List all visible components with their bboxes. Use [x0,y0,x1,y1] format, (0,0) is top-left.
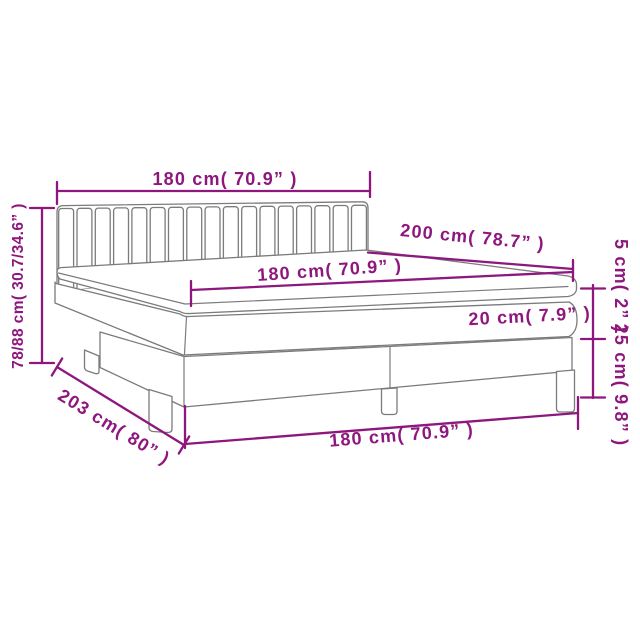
label-mattress-length: 200 cm( 78.7” ) [399,220,545,254]
bed-leg [557,370,575,412]
dim-total-height [30,208,54,363]
bed-leg [382,388,398,415]
label-total-height: 78/88 cm( 30.7/34.6” ) [10,203,27,369]
bed-leg [85,350,100,374]
label-headboard-width: 180 cm( 70.9” ) [152,169,297,189]
label-base-width: 180 cm( 70.9” ) [328,419,474,450]
bed-dimension-diagram: 180 cm( 70.9” ) 78/88 cm( 30.7/34.6” ) 2… [0,0,640,640]
dim-right-bracket [581,285,605,398]
diagram-canvas: 180 cm( 70.9” ) 78/88 cm( 30.7/34.6” ) 2… [0,0,640,640]
label-base-height: 25 cm( 9.8” ) [611,324,631,447]
label-topper-thickness: 5 cm( 2” ) [611,239,631,333]
